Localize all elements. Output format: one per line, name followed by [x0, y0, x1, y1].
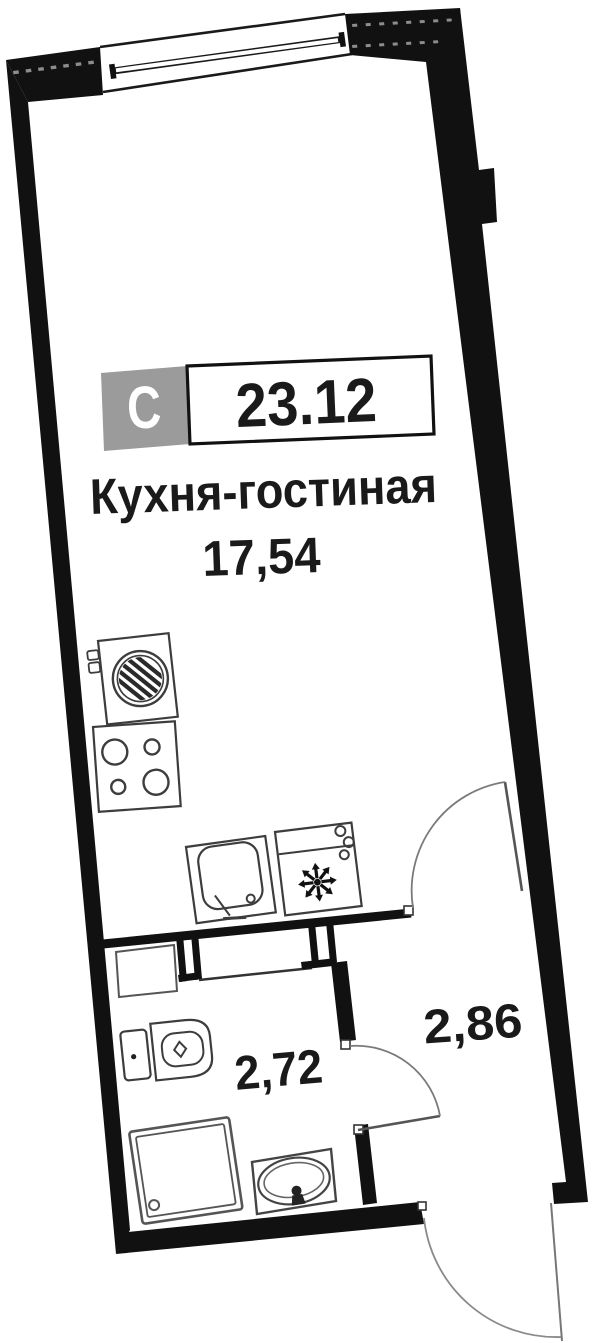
svg-text:2,72: 2,72: [233, 1040, 325, 1100]
svg-text:2,86: 2,86: [422, 995, 524, 1055]
svg-text:23.12: 23.12: [234, 366, 378, 441]
svg-text:С: С: [126, 373, 163, 441]
svg-text:17,54: 17,54: [201, 527, 321, 587]
